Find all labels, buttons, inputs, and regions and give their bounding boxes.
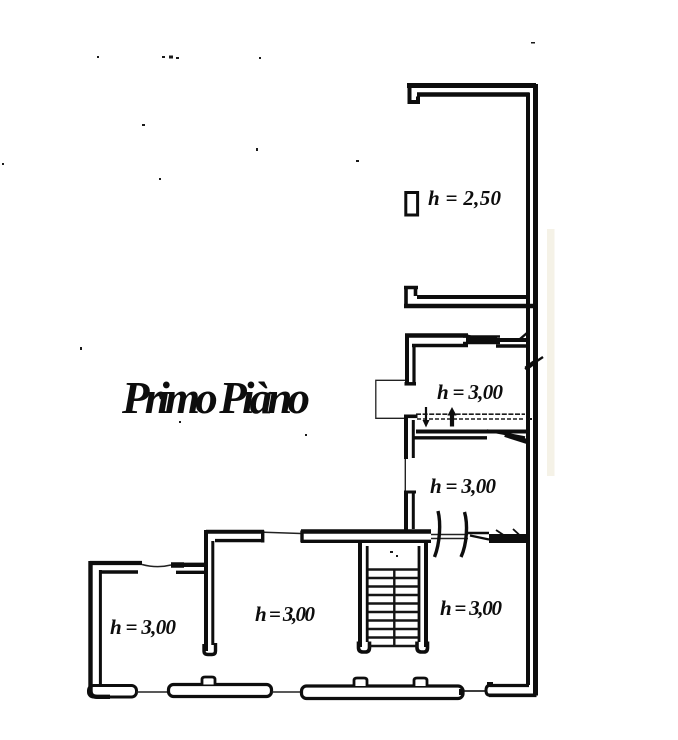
svg-text:h = 3,00: h = 3,00 [430,474,497,498]
svg-text:h = 3,00: h = 3,00 [255,602,316,626]
svg-text:h = 3,00: h = 3,00 [440,596,503,620]
svg-text:h = 3,00: h = 3,00 [437,380,504,404]
svg-text:h = 3,00: h = 3,00 [110,615,177,639]
svg-text:h = 2,50: h = 2,50 [428,186,502,210]
svg-text:Primo Piàno: Primo Piàno [121,373,310,423]
